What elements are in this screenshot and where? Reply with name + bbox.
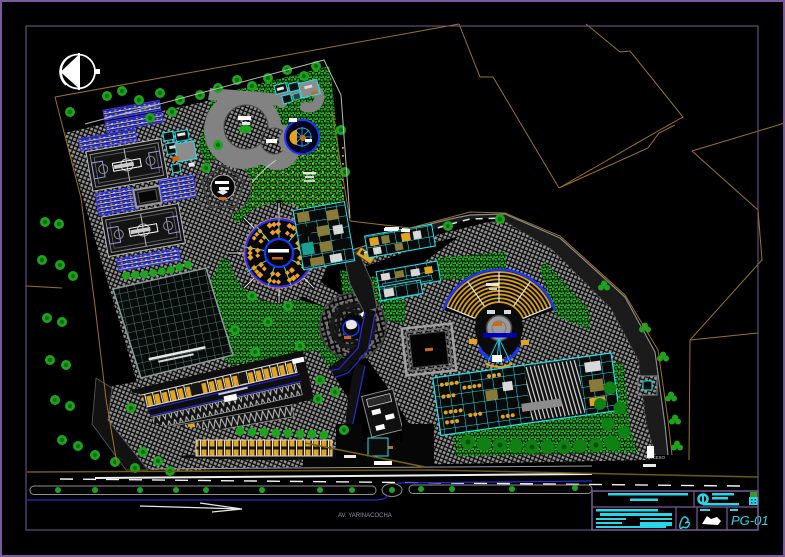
svg-text:PG-01: PG-01	[731, 513, 769, 528]
svg-text:AV. YARINACOCHA: AV. YARINACOCHA	[338, 513, 392, 519]
